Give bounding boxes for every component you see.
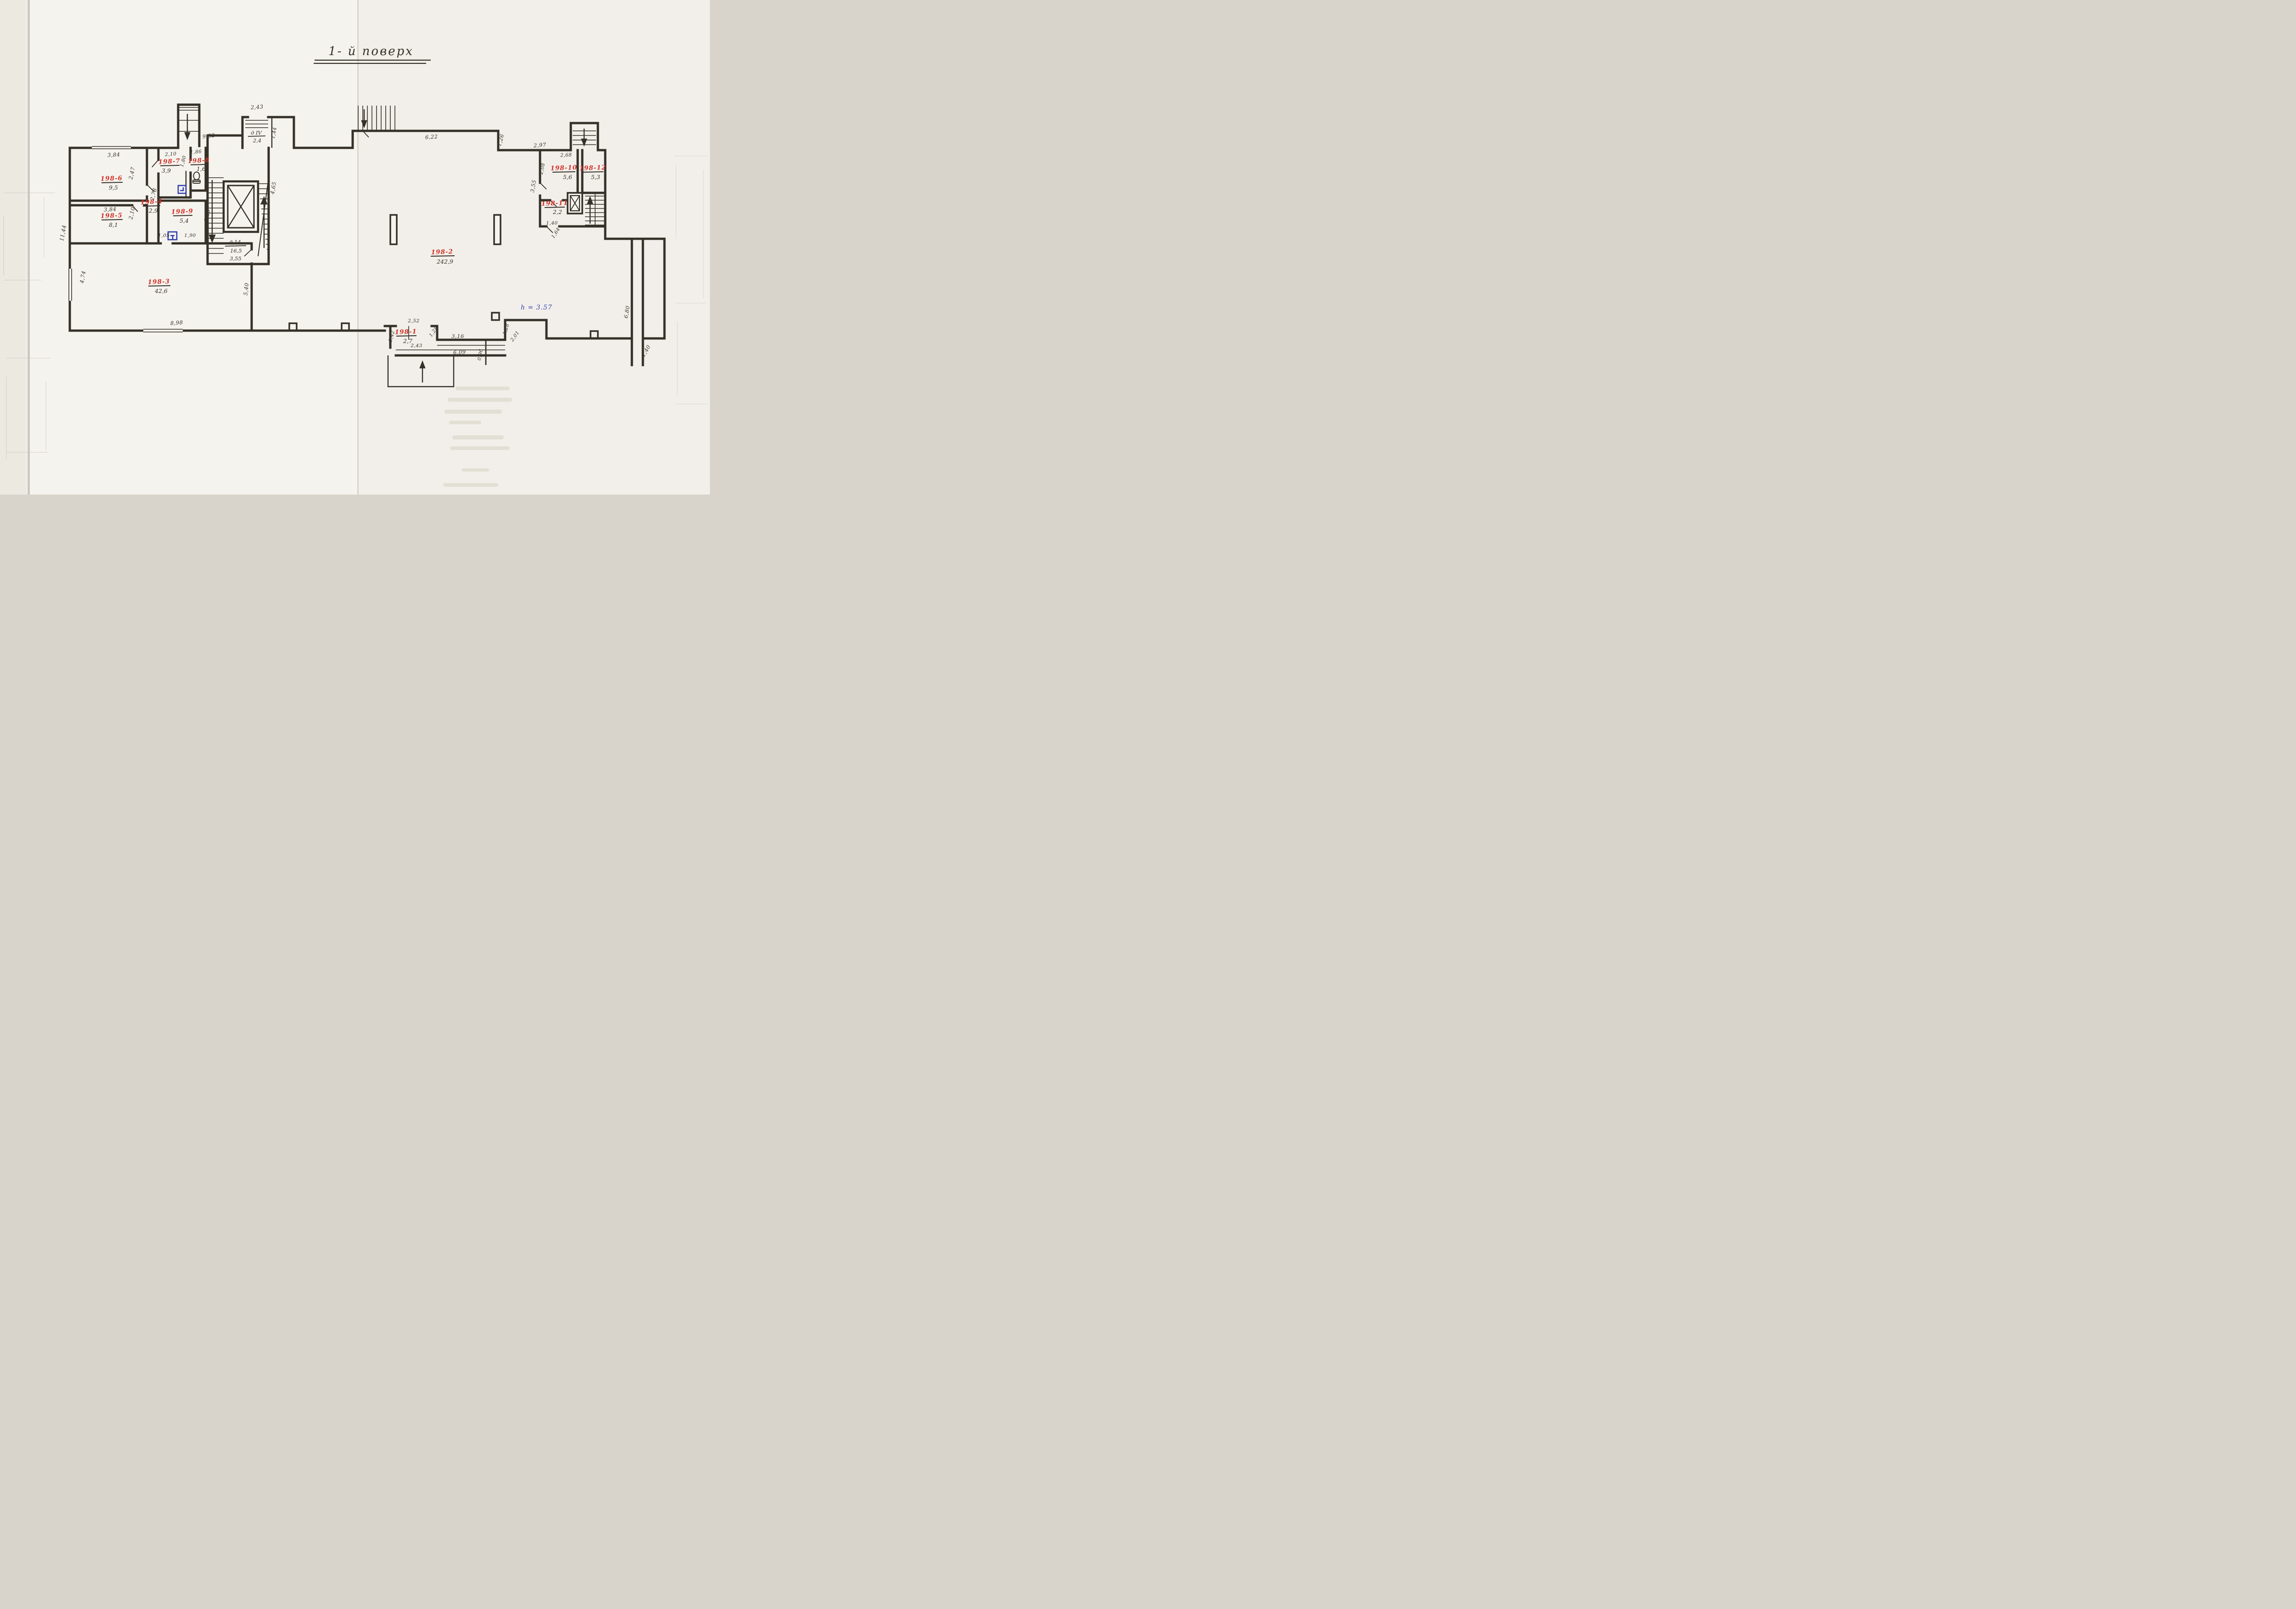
scanned-floorplan-page: 1- й поверх xyxy=(0,0,710,495)
dim-vestibule-door: 2,43 xyxy=(250,103,264,111)
dim-corridor-top: 3,16 xyxy=(451,333,464,339)
room-id: 198-3 xyxy=(148,278,170,286)
window-left-wall xyxy=(68,269,73,301)
room-area: 8,1 xyxy=(109,221,118,228)
height-note: h = 3.57 xyxy=(521,304,552,311)
dim-room9-door-left: 1,05 xyxy=(158,233,169,238)
toilet-icon xyxy=(193,172,200,184)
room-id: 198-12 xyxy=(579,164,606,172)
vestibule-area: 2,4 xyxy=(253,137,261,144)
hall-pier-left xyxy=(390,215,397,244)
room-area: 2,9 xyxy=(148,207,158,214)
room-label-198-5: 198-5 8,1 xyxy=(101,212,123,228)
dim-wing-bottom: 1,40 xyxy=(546,220,557,226)
elevator-shaft-wing xyxy=(568,193,582,214)
floor-plan-canvas: 1- й поверх xyxy=(0,0,710,495)
dim-room9-right: 1,85 xyxy=(203,208,211,222)
room-area: 9,5 xyxy=(109,184,118,191)
stair-width: 3,55 xyxy=(230,255,242,262)
room-label-198-9: 198-9 5,4 xyxy=(171,208,194,224)
sink-icon xyxy=(178,186,186,193)
hall-pier-right xyxy=(494,215,501,244)
arrow-stair-up xyxy=(261,197,267,248)
dim-room6-right: 2,47 xyxy=(127,166,136,180)
dim-room7-niche: 1,80 xyxy=(179,155,187,168)
stair-area: 16,5 xyxy=(230,248,242,254)
room-area: 2,2 xyxy=(552,208,562,215)
dim-room1-bottom: 2,43 xyxy=(410,343,422,349)
window-room3-bottom xyxy=(143,328,183,333)
vestibule-steps xyxy=(245,120,268,128)
dim-room7-top: 2,10 xyxy=(164,151,177,158)
room-id: 198-9 xyxy=(171,208,194,216)
dim-room3-right: 5,40 xyxy=(242,282,250,296)
stair-treads-right xyxy=(258,178,269,256)
dim-room3-bottom: 8,98 xyxy=(170,319,183,326)
dim-room6-top: 3,84 xyxy=(107,151,120,158)
page-fold-shadow xyxy=(28,0,30,495)
dim-room9-door-right: 1,90 xyxy=(184,233,196,238)
shaft-divisions xyxy=(178,107,199,131)
room-label-198-7: 198-7 3,9 xyxy=(158,158,180,174)
page-seam xyxy=(357,0,359,495)
dim-hall-top: 6,22 xyxy=(425,133,438,141)
room-area: 42,6 xyxy=(154,287,168,294)
dim-hall-top-right: 2,97 xyxy=(533,141,546,149)
dim-tall-room: 9,82 xyxy=(202,132,215,140)
stair-id: д 14 xyxy=(229,239,241,245)
room-label-198-6: 198-6 9,5 xyxy=(101,174,123,191)
room-area: 5,3 xyxy=(591,174,600,180)
room-id: 198-11 xyxy=(541,199,568,208)
drawing-title: 1- й поверх xyxy=(314,45,431,63)
fixtures xyxy=(168,172,200,240)
dim-room8-top: 1,86 xyxy=(190,149,202,155)
title-text: 1- й поверх xyxy=(328,45,414,58)
dim-hall-left: 4,65 xyxy=(269,181,278,195)
room-id: 198-10 xyxy=(550,164,577,172)
room-id: 198-2 xyxy=(431,248,454,256)
arrow-shaft-down xyxy=(185,114,190,139)
room-area: 242,9 xyxy=(436,258,453,265)
elevator-shaft-main xyxy=(224,181,258,232)
room-area: 3,9 xyxy=(162,167,171,174)
vestibule-id: д IV xyxy=(251,129,262,136)
dim-room10-top: 2,68 xyxy=(560,152,572,158)
dim-room3-left: 4,74 xyxy=(79,270,87,284)
vestibule-label: д IV 2,4 xyxy=(248,129,265,144)
room-id: 198-7 xyxy=(158,158,180,166)
dim-room1-top: 2,52 xyxy=(407,318,419,324)
right-page-tint xyxy=(359,0,710,495)
room-area: 5,6 xyxy=(563,174,572,180)
room-id: 198-5 xyxy=(101,212,123,220)
dim-outer-left: 11,44 xyxy=(58,225,68,242)
scan-artifacts xyxy=(0,0,710,495)
room-id: 198-6 xyxy=(101,174,123,183)
room-id: 198-1 xyxy=(395,328,417,336)
window-top-left xyxy=(92,145,131,151)
room-id: 198-8 xyxy=(187,157,210,165)
room-label-198-3: 198-3 42,6 xyxy=(148,278,170,294)
dim-corridor-bottom: 6,09 xyxy=(453,349,466,356)
dim-room5-top: 3,84 xyxy=(104,206,117,213)
room-area: 1,6 xyxy=(197,165,206,172)
room-area: 5,4 xyxy=(180,217,189,224)
dim-room5-right: 2,10 xyxy=(127,206,136,220)
